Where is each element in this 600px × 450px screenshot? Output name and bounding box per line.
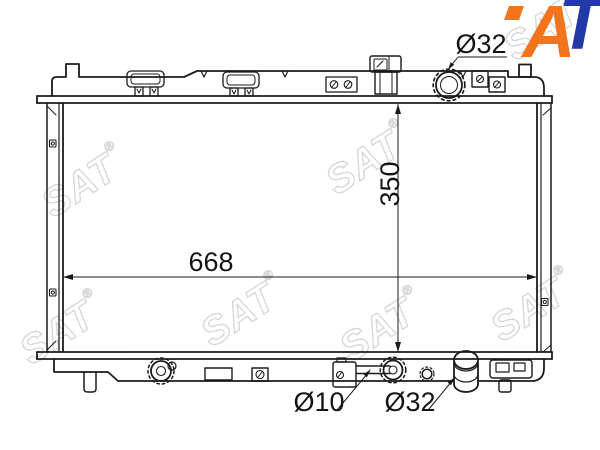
dimension-label-o10: Ø10 xyxy=(293,387,344,417)
dimension-drain-pipe: Ø10 xyxy=(293,369,371,417)
watermark-text: SAT xyxy=(34,145,127,227)
radiator-drawing-page: SAT ® SAT ® SAT ® SAT ® SAT ® SAT ® SAT xyxy=(0,0,600,450)
dimension-label-668: 668 xyxy=(188,247,233,277)
locating-pin xyxy=(84,372,96,392)
watermark: SAT ® xyxy=(481,261,584,351)
watermark: SAT ® xyxy=(10,284,113,374)
technical-drawing-svg: SAT ® SAT ® SAT ® SAT ® SAT ® SAT ® SAT xyxy=(0,0,600,450)
arrowhead-down-icon xyxy=(395,342,401,352)
mount-bracket xyxy=(127,71,164,96)
top-tank-flange xyxy=(37,96,552,103)
dimension-label-o32-top: Ø32 xyxy=(455,29,506,59)
watermark: SAT ® xyxy=(191,266,294,356)
dimension-label-350: 350 xyxy=(375,161,405,206)
bottom-box xyxy=(205,368,232,380)
screw-plate xyxy=(326,77,357,92)
dimension-filler-neck: Ø32 xyxy=(448,29,507,70)
logo-letter-a: A xyxy=(520,0,575,73)
bottom-right-bracket xyxy=(490,360,532,392)
dimension-core-width: 668 xyxy=(63,247,537,280)
oil-cooler-pipe xyxy=(333,357,434,387)
top-tank-outline xyxy=(52,64,544,96)
watermark-text: SAT xyxy=(483,269,576,351)
overflow-bracket xyxy=(370,56,401,94)
outlet-pipe xyxy=(454,351,478,392)
arrowhead-up-icon xyxy=(395,104,401,114)
watermark: SAT ® xyxy=(330,281,433,371)
watermark-text: SAT xyxy=(193,274,286,356)
mount-bracket xyxy=(223,72,259,96)
arrowhead-left-icon xyxy=(63,274,73,280)
upper-right-bracket xyxy=(472,71,505,92)
radiator-drawing xyxy=(37,56,552,392)
dimension-label-o32-bottom: Ø32 xyxy=(384,387,435,417)
bottom-screw-boss xyxy=(252,368,268,381)
